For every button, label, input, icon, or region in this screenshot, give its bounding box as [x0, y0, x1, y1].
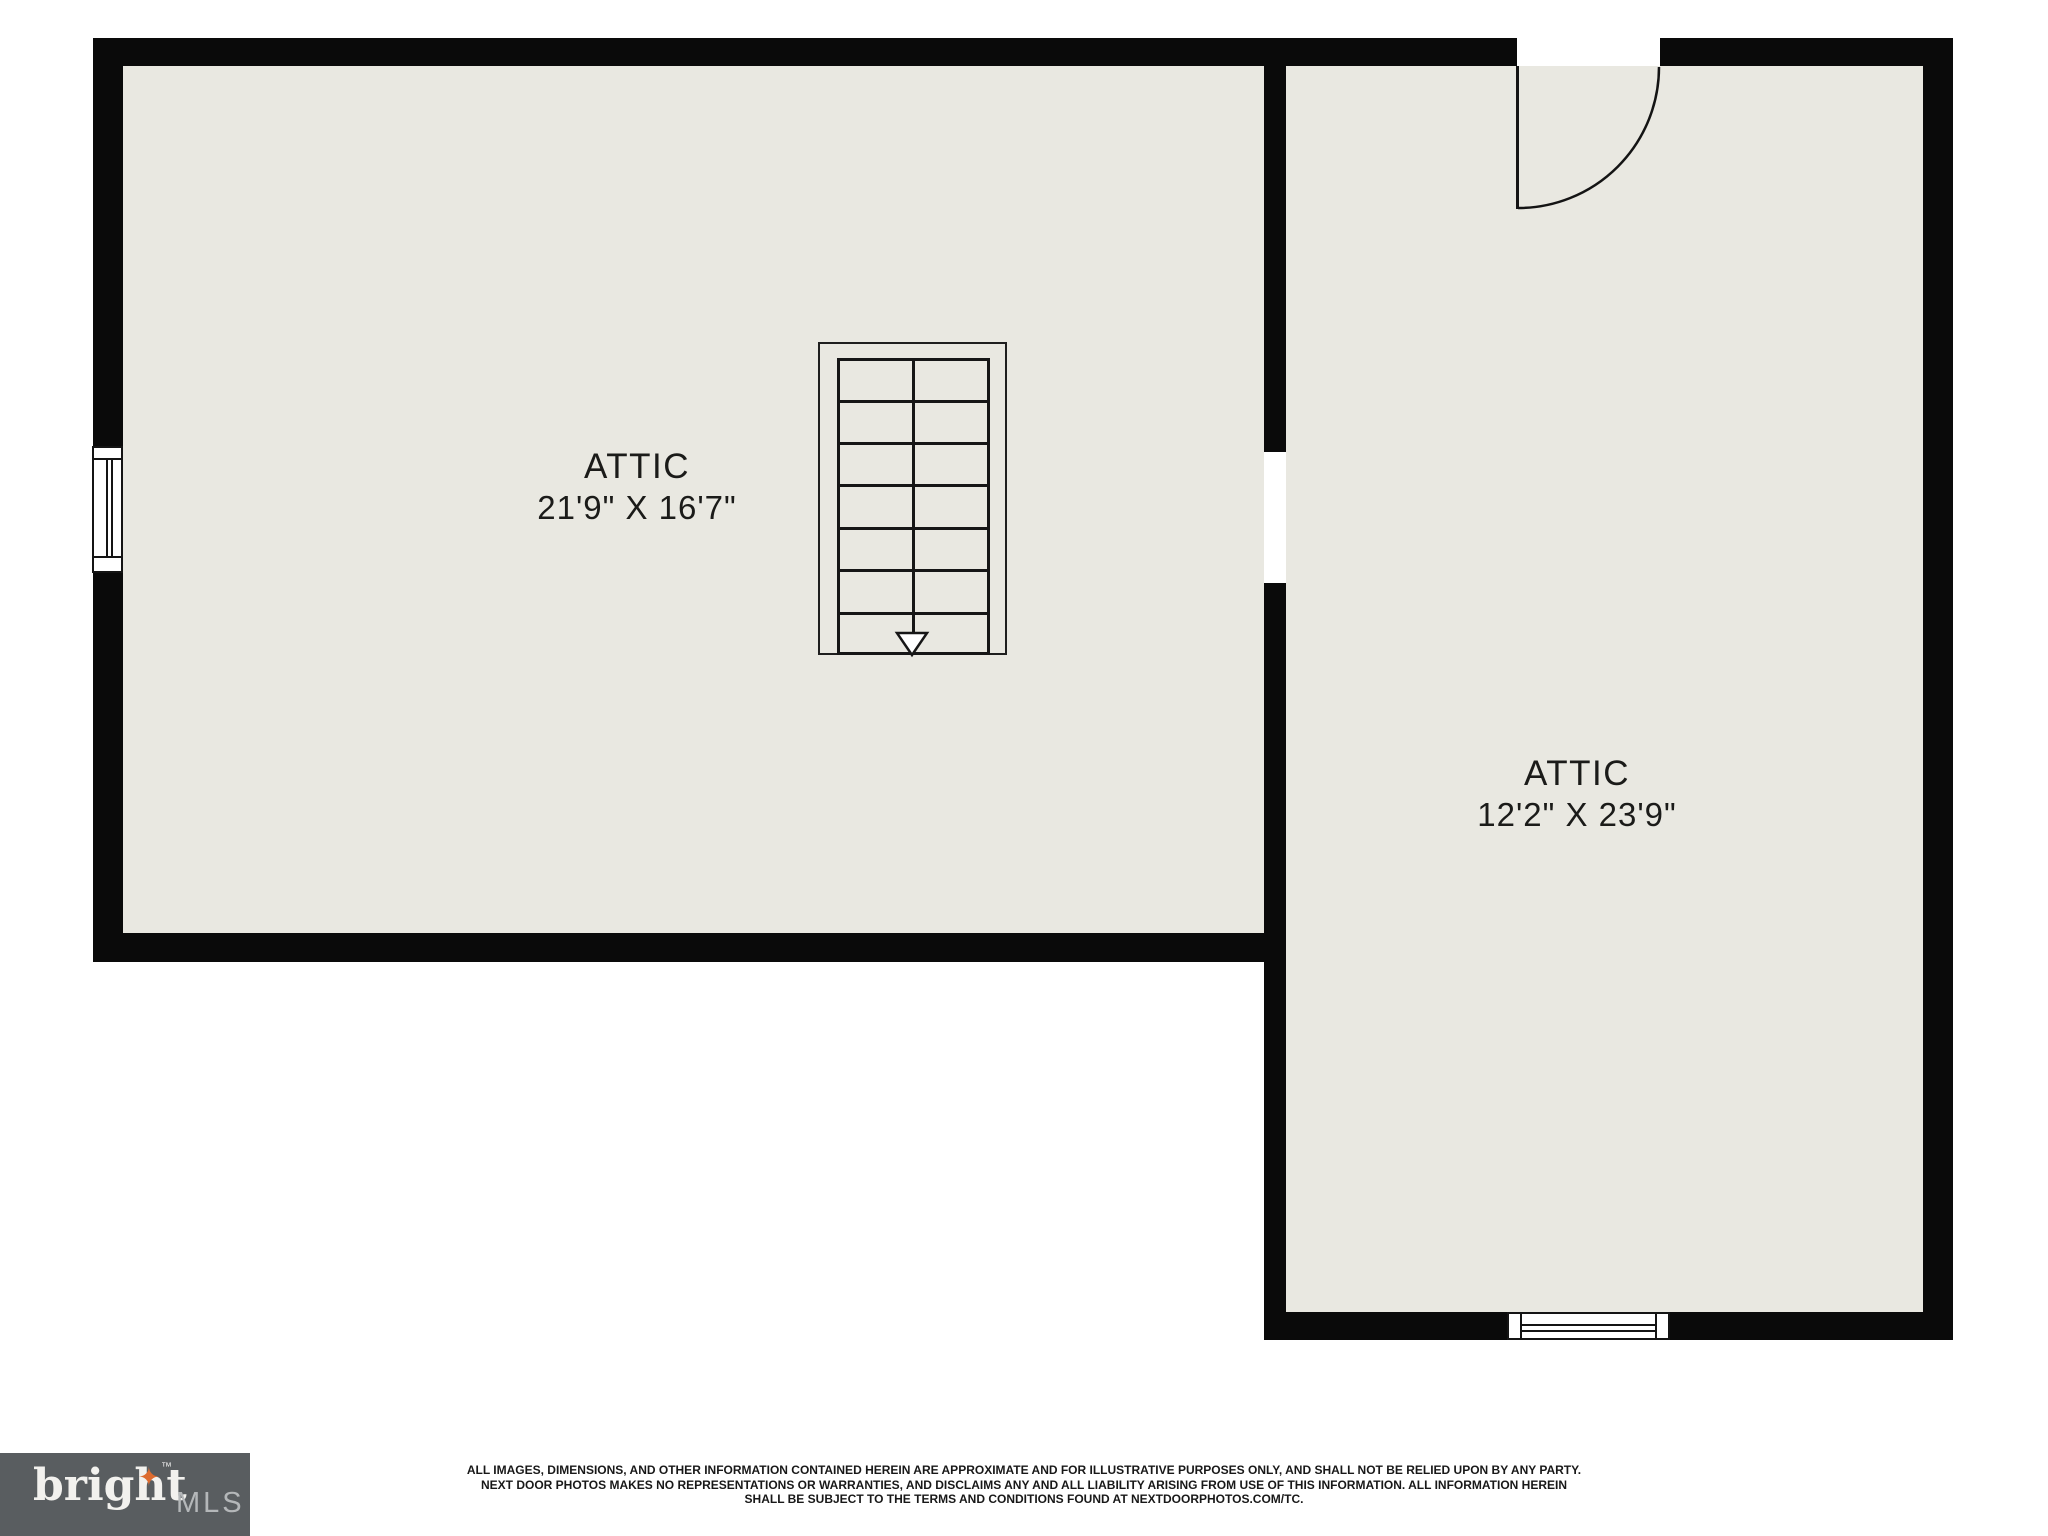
- room-name: ATTIC: [1377, 752, 1777, 795]
- left-room-bottom-wall: [93, 933, 1286, 962]
- passage-opening: [1264, 452, 1286, 583]
- disclaimer-line: ALL IMAGES, DIMENSIONS, AND OTHER INFORM…: [0, 1463, 2048, 1478]
- middle-shared-wall: [1264, 38, 1286, 1340]
- left-room-label: ATTIC 21'9" X 16'7": [437, 445, 837, 528]
- right-attic-floor: [1286, 66, 1923, 1312]
- stairs-down-arrow-icon: [894, 630, 930, 658]
- disclaimer-line: SHALL BE SUBJECT TO THE TERMS AND CONDIT…: [0, 1492, 2048, 1507]
- disclaimer-text: ALL IMAGES, DIMENSIONS, AND OTHER INFORM…: [0, 1463, 2048, 1507]
- door-swing-arc-icon: [1517, 66, 1665, 214]
- disclaimer-line: NEXT DOOR PHOTOS MAKES NO REPRESENTATION…: [0, 1478, 2048, 1493]
- window-icon-bottom-wall: [1507, 1312, 1670, 1340]
- stairs-symbol: [837, 358, 990, 655]
- logo-mls-text: MLS: [176, 1489, 245, 1518]
- window-icon-left-wall: [92, 446, 123, 573]
- room-dimensions: 12'2" X 23'9": [1377, 795, 1777, 835]
- top-wall: [93, 38, 1953, 66]
- right-room-label: ATTIC 12'2" X 23'9": [1377, 752, 1777, 835]
- room-dimensions: 21'9" X 16'7": [437, 488, 837, 528]
- floor-plan-canvas: ATTIC 21'9" X 16'7" ATTIC 12'2" X 23'9" …: [0, 0, 2048, 1536]
- right-wall: [1923, 38, 1953, 1340]
- logo-trademark: ™: [161, 1461, 172, 1473]
- room-name: ATTIC: [437, 445, 837, 488]
- door-opening: [1517, 38, 1660, 66]
- logo-star-icon: ✦: [138, 1464, 160, 1490]
